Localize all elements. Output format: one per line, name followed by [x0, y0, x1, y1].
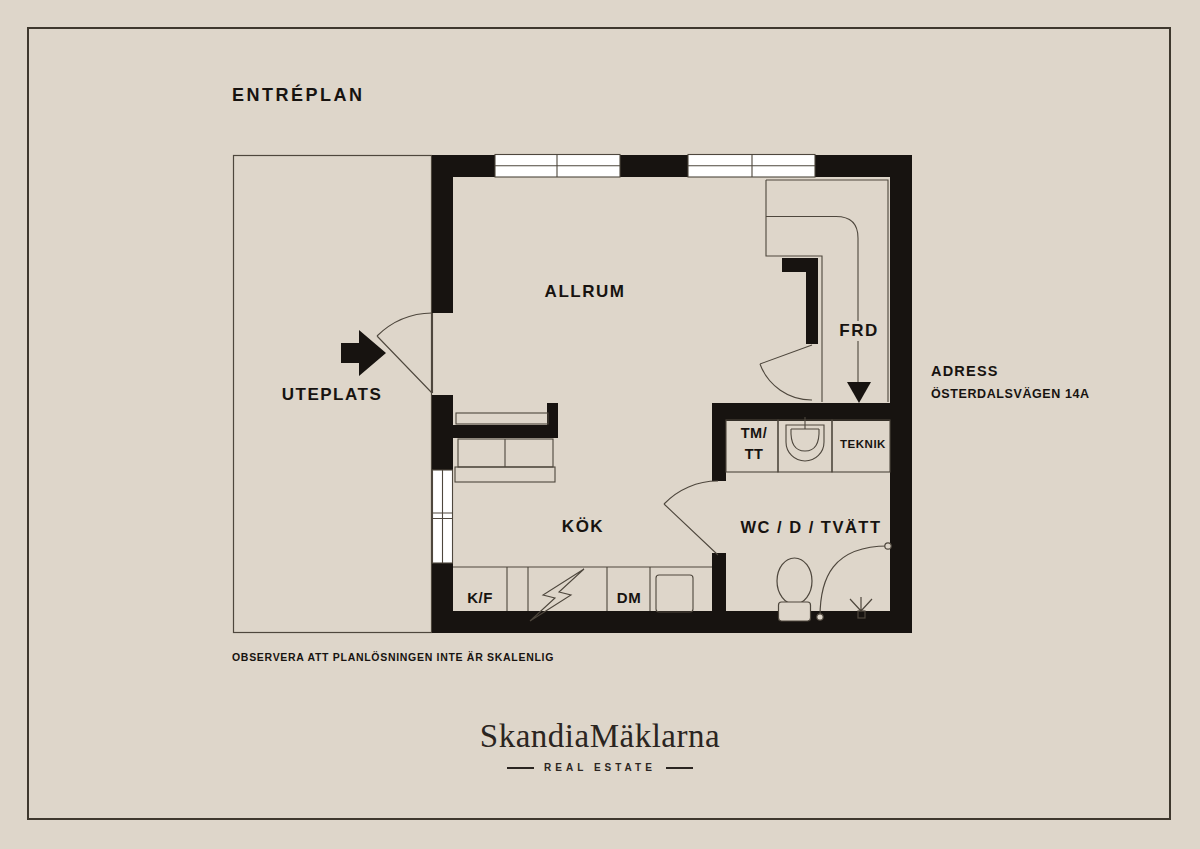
brand-tagline: REAL ESTATE	[544, 762, 656, 773]
tm-line: TM/	[741, 425, 767, 441]
toilet-icon	[777, 558, 812, 621]
address-heading: ADRESS	[931, 363, 999, 379]
kitchen-sink-icon	[656, 575, 693, 612]
tt-line: TT	[745, 446, 764, 462]
appliance-label-dm: DM	[617, 589, 641, 606]
washbasin-icon	[786, 417, 824, 461]
tagline-dash-right	[666, 767, 693, 769]
entry-path-arrow-icon	[766, 217, 871, 404]
window-icon	[433, 155, 816, 564]
room-label-uteplats: UTEPLATS	[282, 385, 382, 405]
address-street: ÖSTERDALSVÄGEN 14A	[931, 387, 1090, 401]
shower-icon	[817, 543, 891, 620]
room-label-kok: KÖK	[562, 517, 604, 537]
hall-outline	[766, 180, 888, 402]
sofa-icon	[455, 413, 555, 482]
room-label-teknik: TEKNIK	[840, 438, 886, 450]
appliance-label-kf: K/F	[467, 589, 493, 606]
exterior-walls	[432, 155, 912, 633]
room-label-allrum: ALLRUM	[545, 282, 626, 302]
disclaimer-text: OBSERVERA ATT PLANLÖSNINGEN INTE ÄR SKAL…	[232, 651, 554, 663]
room-label-frd: FRD	[836, 321, 881, 341]
room-label-wc: WC / D / TVÄTT	[740, 518, 881, 537]
tagline-dash-left	[507, 767, 534, 769]
room-label-tm-tt: TM/ TT	[741, 423, 767, 465]
brand-logo: SkandiaMäklarna	[0, 718, 1200, 755]
brand-tagline-row: REAL ESTATE	[0, 762, 1200, 773]
entrance-arrow-icon	[341, 330, 386, 376]
floorplan-page: ENTRÉPLAN	[0, 0, 1200, 849]
